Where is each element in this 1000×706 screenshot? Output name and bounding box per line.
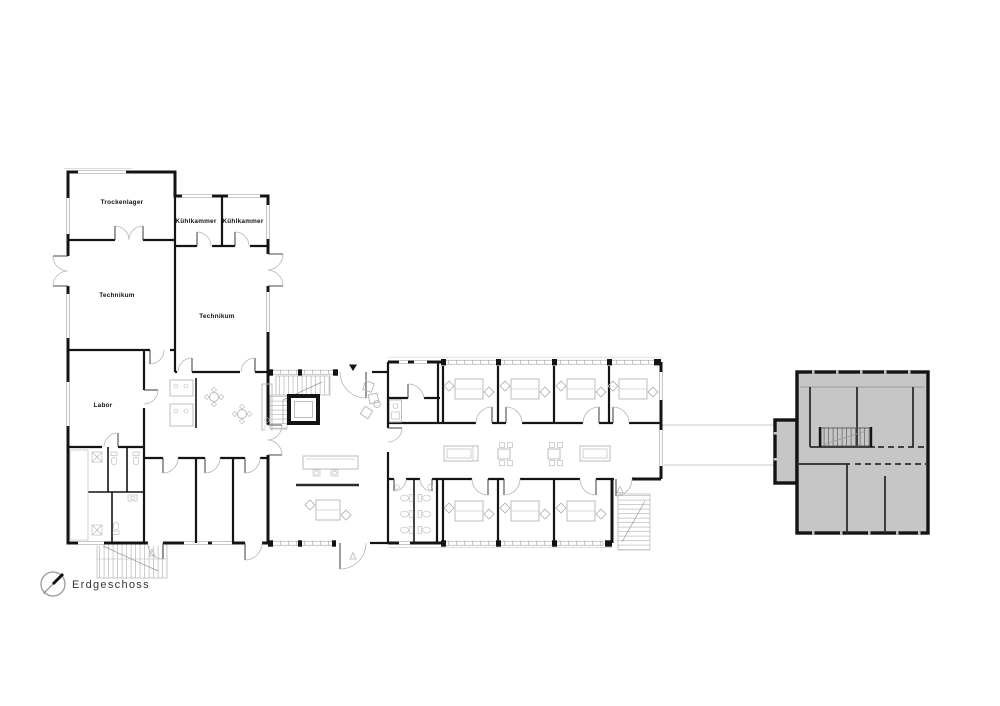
hall-corridor-door — [388, 428, 402, 442]
floor-plan-page: Trockenlager Kühlkammer Kühlkammer Techn… — [0, 0, 1000, 706]
east-exterior-door — [265, 254, 283, 286]
room-label-technikum-left: Technikum — [99, 292, 135, 299]
room-label-labor: Labor — [93, 402, 112, 409]
wing-kitchenette — [390, 400, 402, 422]
elevator — [289, 396, 318, 423]
office-desks-bottom — [444, 501, 606, 521]
room-label-technikum-right: Technikum — [199, 313, 235, 320]
entrance-arrow-icon — [349, 365, 357, 372]
lounge-seating — [360, 381, 380, 419]
hall-west-double-door — [265, 425, 282, 455]
room-label-trockenlager: Trockenlager — [101, 199, 144, 206]
existing-stair — [820, 427, 871, 447]
room-label-kuehlkammer-left: Kühlkammer — [175, 218, 216, 225]
office-desks-top — [444, 379, 658, 399]
floor-plan-canvas: Trockenlager Kühlkammer Kühlkammer Techn… — [0, 0, 1000, 706]
room-label-kuehlkammer-right: Kühlkammer — [222, 218, 263, 225]
west-exterior-door — [53, 256, 71, 286]
office-doors — [394, 384, 632, 496]
hall-desk-group — [305, 500, 351, 520]
connector-passage — [662, 425, 775, 465]
south-entrance-door — [340, 543, 366, 569]
left-wing: Trockenlager Kühlkammer Kühlkammer Techn… — [53, 169, 283, 561]
south-exterior-door-2 — [245, 540, 262, 560]
plan-title: Erdgeschoss — [72, 579, 150, 591]
reception-counter — [303, 456, 358, 476]
north-arrow-icon — [41, 572, 65, 596]
existing-building — [774, 370, 928, 534]
main-entrance-door — [340, 365, 366, 399]
entrance-hall — [265, 362, 402, 569]
exterior-stair-southeast — [617, 487, 650, 551]
corridor-furniture — [444, 443, 610, 466]
